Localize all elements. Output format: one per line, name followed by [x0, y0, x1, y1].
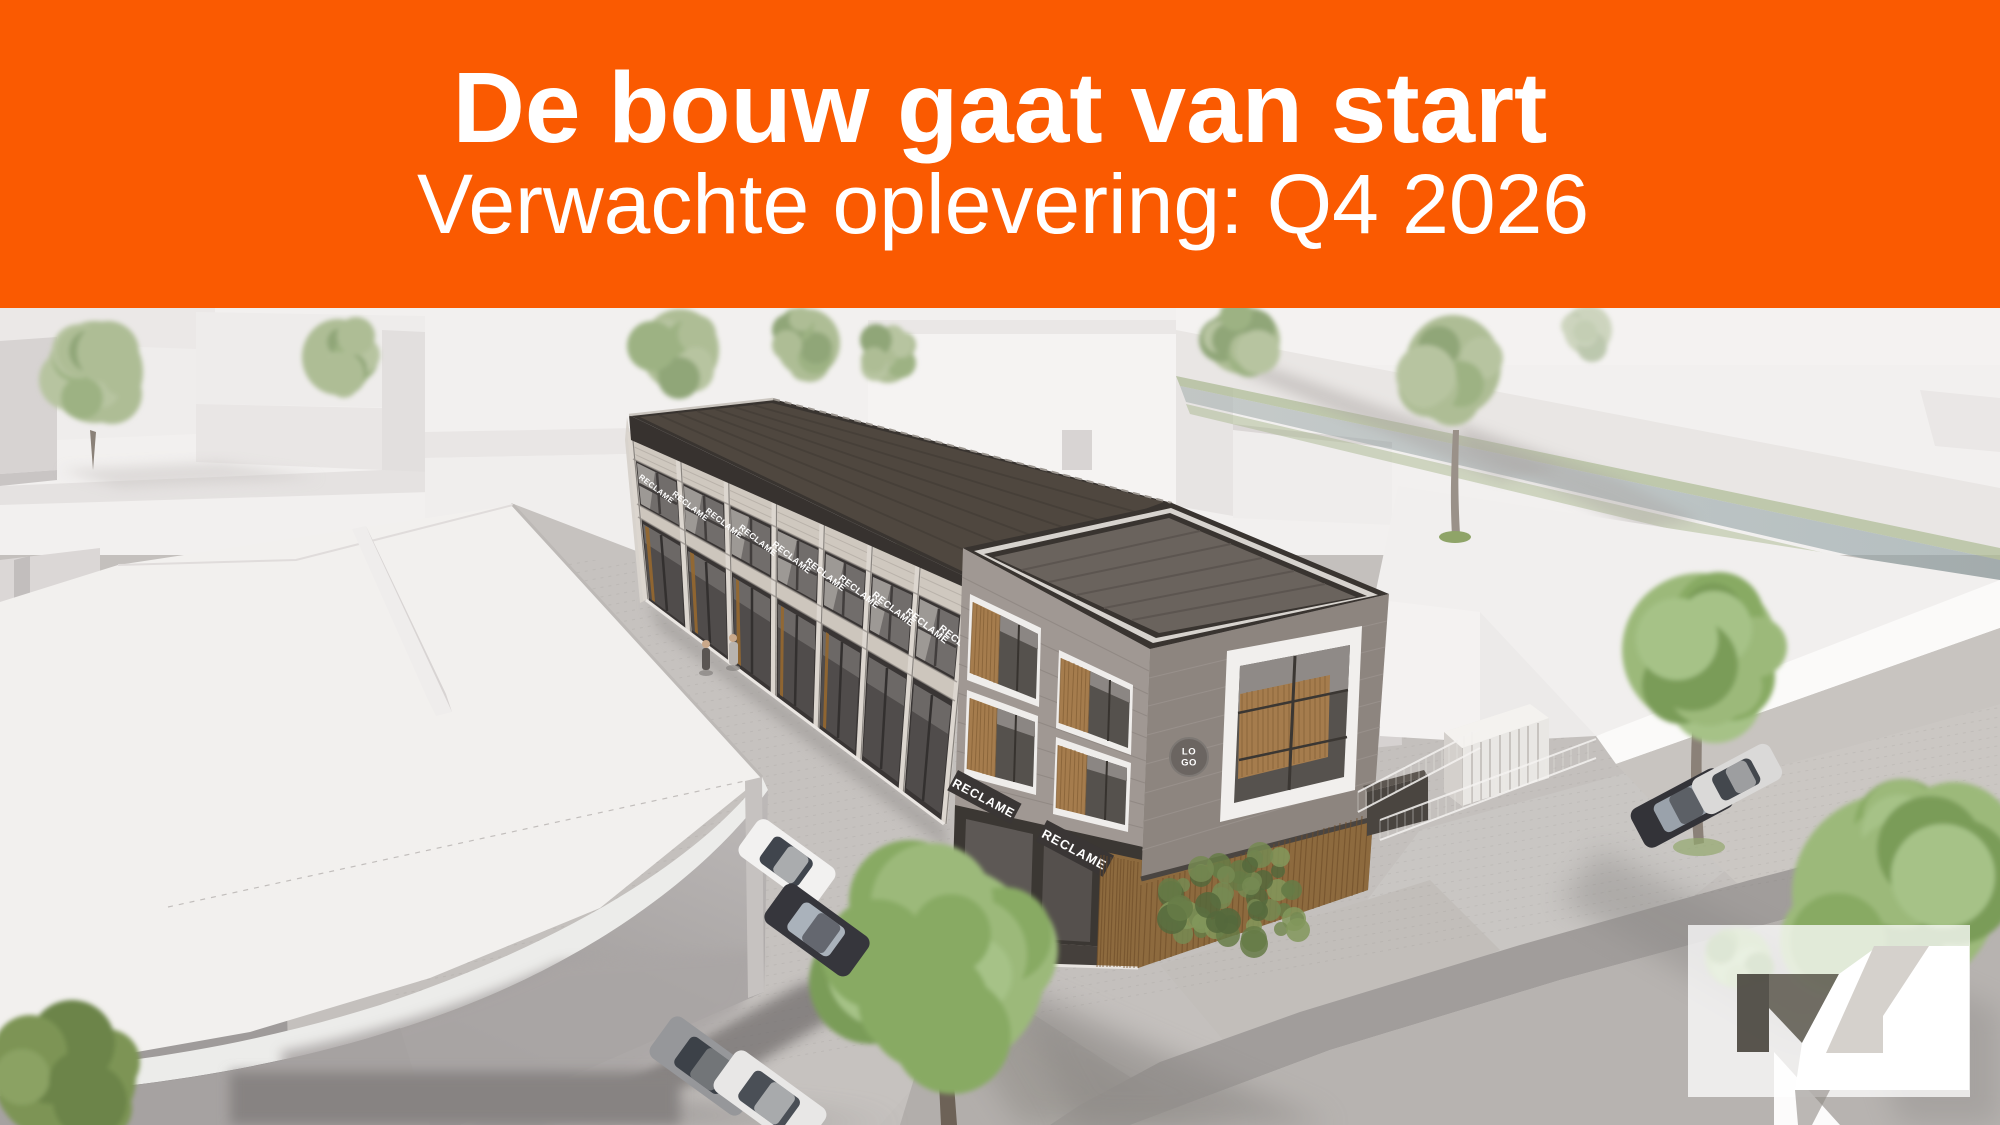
svg-text:LO: LO [1182, 747, 1196, 758]
svg-text:De bouw gaat van start: De bouw gaat van start [453, 52, 1548, 164]
svg-text:GO: GO [1181, 758, 1197, 769]
svg-text:Verwachte oplevering: Q4 2026: Verwachte oplevering: Q4 2026 [417, 157, 1589, 251]
